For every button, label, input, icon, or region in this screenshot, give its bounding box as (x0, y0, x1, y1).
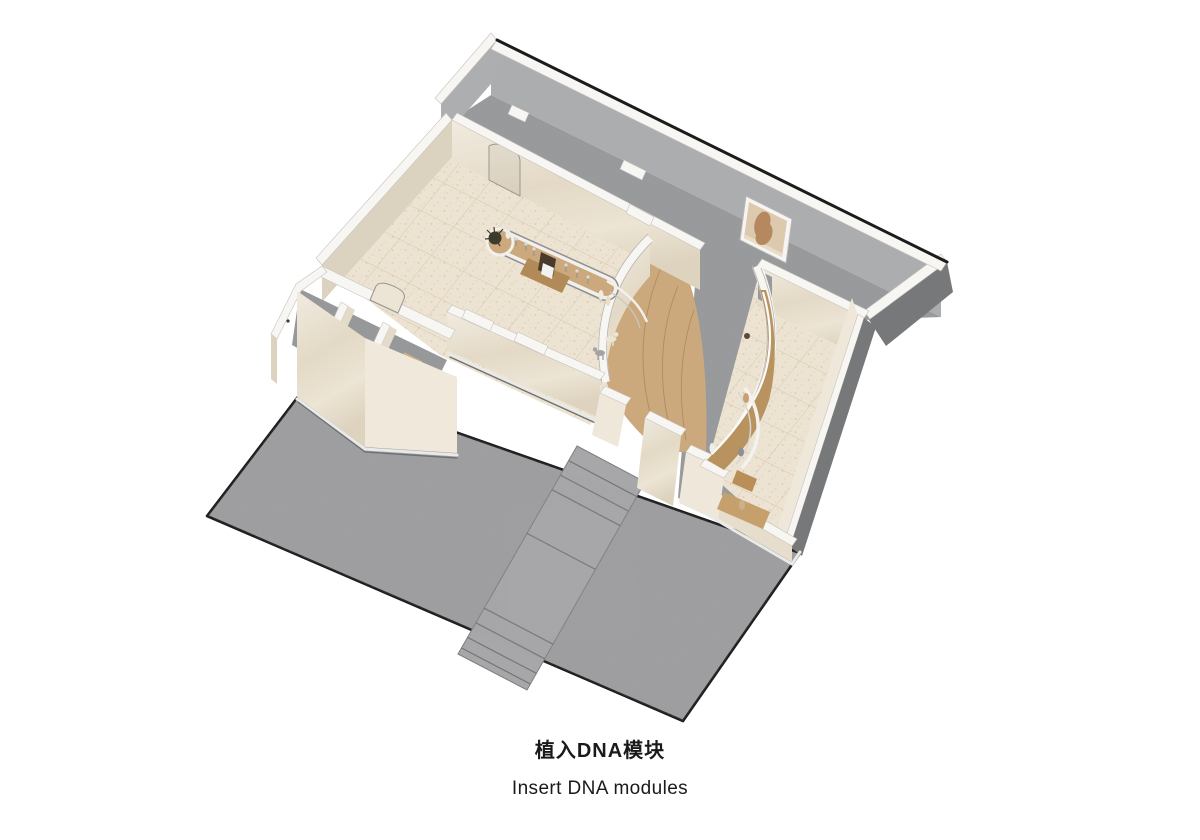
fitting-block-west-corner-face (271, 334, 277, 384)
caption-chinese: 植入DNA模块 (0, 736, 1200, 766)
counter-figurine-1 (506, 229, 511, 239)
caption-block: 植入DNA模块 Insert DNA modules (0, 736, 1200, 804)
axonometric-rendering (0, 0, 1200, 840)
counter-figurine-2 (599, 290, 604, 300)
stray-dot-mark (286, 319, 289, 322)
counter-figurine-3 (606, 296, 611, 306)
design-presentation-page: 植入DNA模块 Insert DNA modules (0, 0, 1200, 840)
caption-english: Insert DNA modules (0, 774, 1200, 804)
